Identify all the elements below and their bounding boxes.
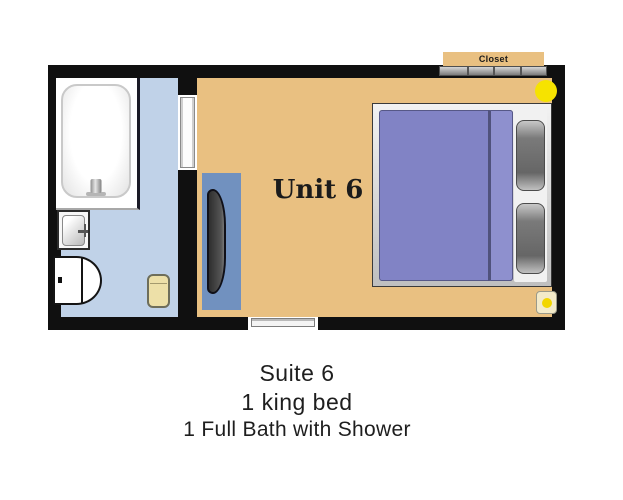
closet-sliding-doors <box>439 66 547 76</box>
floorplan-image: Unit 6 Closet Suite 6 1 king bed 1 Full … <box>0 0 623 500</box>
bench <box>207 189 226 294</box>
entry-door <box>251 318 315 327</box>
bathtub-alcove <box>56 78 140 210</box>
closet-door-divider <box>520 67 522 75</box>
sink-faucet-icon <box>78 230 88 233</box>
bench-mat <box>202 173 241 310</box>
toilet-flush-handle <box>58 277 62 283</box>
entry-door-opening <box>248 317 318 330</box>
bathroom-door <box>180 97 195 168</box>
ceiling-light-icon <box>535 80 557 102</box>
sink-faucet-handle <box>84 224 86 237</box>
sink <box>57 210 90 250</box>
wall-switch-icon <box>536 291 557 314</box>
bathroom-door-opening <box>178 95 197 170</box>
caption-bed: 1 king bed <box>0 388 594 416</box>
caption-suite: Suite 6 <box>0 358 594 388</box>
bathtub-faucet-icon <box>91 179 102 193</box>
bathtub <box>61 84 131 198</box>
closet-door-divider <box>493 67 495 75</box>
waste-bin-lid <box>150 276 167 284</box>
floorplan: Unit 6 Closet <box>48 65 565 330</box>
wall-switch-dot <box>542 298 552 308</box>
pillow <box>516 203 545 274</box>
toilet <box>53 256 102 305</box>
caption: Suite 6 1 king bed 1 Full Bath with Show… <box>0 358 594 443</box>
caption-bath: 1 Full Bath with Shower <box>0 416 594 443</box>
toilet-tank-divider <box>81 258 83 303</box>
pillow <box>516 120 545 191</box>
waste-bin <box>147 274 170 308</box>
closet-door-divider <box>467 67 469 75</box>
bed-blanket-fold <box>488 110 513 281</box>
closet-label: Closet <box>443 52 544 67</box>
king-bed <box>372 103 552 287</box>
